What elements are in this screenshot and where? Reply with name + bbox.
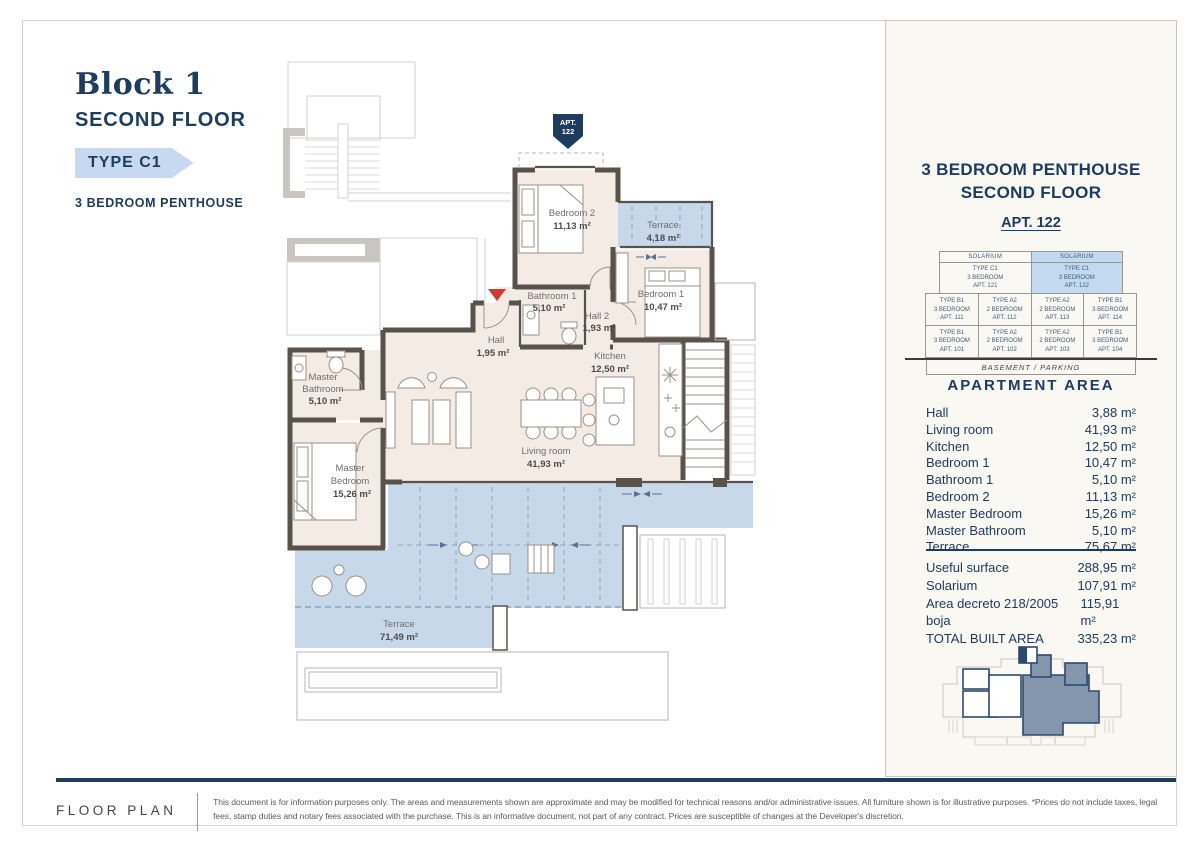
total-row: Solarium107,91 m² bbox=[926, 577, 1136, 595]
svg-text:Bathroom: Bathroom bbox=[302, 384, 343, 395]
totals-divider bbox=[926, 549, 1136, 551]
block-title: Block 1 bbox=[75, 67, 246, 102]
svg-text:4,18 m²: 4,18 m² bbox=[647, 233, 680, 244]
totals-list: Useful surface288,95 m² Solarium107,91 m… bbox=[926, 559, 1136, 648]
basement-label: BASEMENT / PARKING bbox=[926, 360, 1136, 375]
title-block: Block 1 SECOND FLOOR TYPE C1 3 BEDROOM P… bbox=[75, 67, 246, 210]
svg-text:1,95 m²: 1,95 m² bbox=[477, 348, 510, 359]
building-stack-table: SOLARIUM TYPE C1 3 BEDROOM APT. 121 SOLA… bbox=[925, 251, 1137, 375]
svg-text:1,93 m²: 1,93 m² bbox=[583, 323, 616, 334]
svg-text:41,93 m²: 41,93 m² bbox=[527, 459, 565, 470]
total-row: Area decreto 218/2005 boja115,91 m² bbox=[926, 595, 1136, 631]
label-terrace-main: Terrace bbox=[383, 619, 415, 630]
type-tag: TYPE C1 bbox=[75, 148, 194, 178]
label-bathroom1: Bathroom 1 bbox=[527, 291, 576, 302]
label-master-bathroom: Master bbox=[308, 372, 337, 383]
area-row: Bedroom 211,13 m² bbox=[926, 489, 1136, 506]
svg-text:15,26 m²: 15,26 m² bbox=[333, 489, 371, 500]
building-locator-map bbox=[886, 639, 1176, 772]
apartment-number: APT. 122 bbox=[886, 215, 1176, 231]
svg-text:71,49 m²: 71,49 m² bbox=[380, 632, 418, 643]
area-row: Master Bedroom15,26 m² bbox=[926, 506, 1136, 523]
stack-row-2: TYPE B13 BEDROOMAPT. 101 TYPE A22 BEDROO… bbox=[925, 326, 1137, 358]
area-row: Hall3,88 m² bbox=[926, 405, 1136, 422]
apartment-area-list: Hall3,88 m² Living room41,93 m² Kitchen1… bbox=[926, 405, 1136, 556]
svg-text:10,47 m²: 10,47 m² bbox=[644, 302, 682, 313]
footer-divider bbox=[197, 793, 198, 831]
footer-label: FLOOR PLAN bbox=[56, 789, 177, 818]
area-row: Bedroom 110,47 m² bbox=[926, 455, 1136, 472]
footer: FLOOR PLAN This document is for informat… bbox=[56, 789, 1166, 831]
area-row: Kitchen12,50 m² bbox=[926, 439, 1136, 456]
label-living-room: Living room bbox=[521, 446, 570, 457]
stack-penthouse-122-highlighted: SOLARIUM TYPE C1 3 BEDROOM APT. 122 bbox=[1031, 252, 1123, 293]
label-bedroom1: Bedroom 1 bbox=[638, 289, 684, 300]
svg-text:Bedroom: Bedroom bbox=[331, 476, 370, 487]
area-row: Master Bathroom5,10 m² bbox=[926, 523, 1136, 540]
label-hall2: Hall 2 bbox=[585, 311, 609, 322]
svg-text:5,10 m²: 5,10 m² bbox=[309, 396, 342, 407]
floor-plan: APT. 122 Bedroom 2 11,13 m² Terrace 4,18… bbox=[250, 48, 780, 748]
area-row: Living room41,93 m² bbox=[926, 422, 1136, 439]
footer-rule bbox=[56, 778, 1176, 782]
plan-subtitle: 3 BEDROOM PENTHOUSE bbox=[75, 196, 246, 210]
info-panel: 3 BEDROOM PENTHOUSE SECOND FLOOR APT. 12… bbox=[885, 20, 1177, 777]
area-row: Terrace75,67 m² bbox=[926, 539, 1136, 556]
floor-title: SECOND FLOOR bbox=[75, 109, 246, 132]
apt-badge: APT. 122 bbox=[553, 114, 583, 149]
communal-stairs bbox=[283, 62, 511, 341]
label-kitchen: Kitchen bbox=[594, 351, 626, 362]
apt-badge-line2: 122 bbox=[562, 127, 575, 136]
stack-penthouse-121: SOLARIUM TYPE C1 3 BEDROOM APT. 121 bbox=[940, 252, 1031, 293]
label-bedroom2: Bedroom 2 bbox=[549, 208, 595, 219]
svg-text:5,10 m²: 5,10 m² bbox=[533, 303, 566, 314]
label-terrace-top: Terrace bbox=[647, 220, 679, 231]
apartment-area-title: APARTMENT AREA bbox=[886, 377, 1176, 394]
apt-badge-line1: APT. bbox=[560, 118, 576, 127]
area-row: Bathroom 15,10 m² bbox=[926, 472, 1136, 489]
total-row: Useful surface288,95 m² bbox=[926, 559, 1136, 577]
label-hall: Hall bbox=[488, 335, 504, 346]
footer-disclaimer: This document is for information purpose… bbox=[213, 789, 1166, 824]
label-master-bedroom: Master bbox=[335, 463, 364, 474]
stack-row-1: TYPE B13 BEDROOMAPT. 111 TYPE A22 BEDROO… bbox=[925, 293, 1137, 326]
svg-text:11,13 m²: 11,13 m² bbox=[553, 221, 591, 232]
svg-text:12,50 m²: 12,50 m² bbox=[591, 364, 629, 375]
panel-title: 3 BEDROOM PENTHOUSE SECOND FLOOR bbox=[886, 159, 1176, 205]
